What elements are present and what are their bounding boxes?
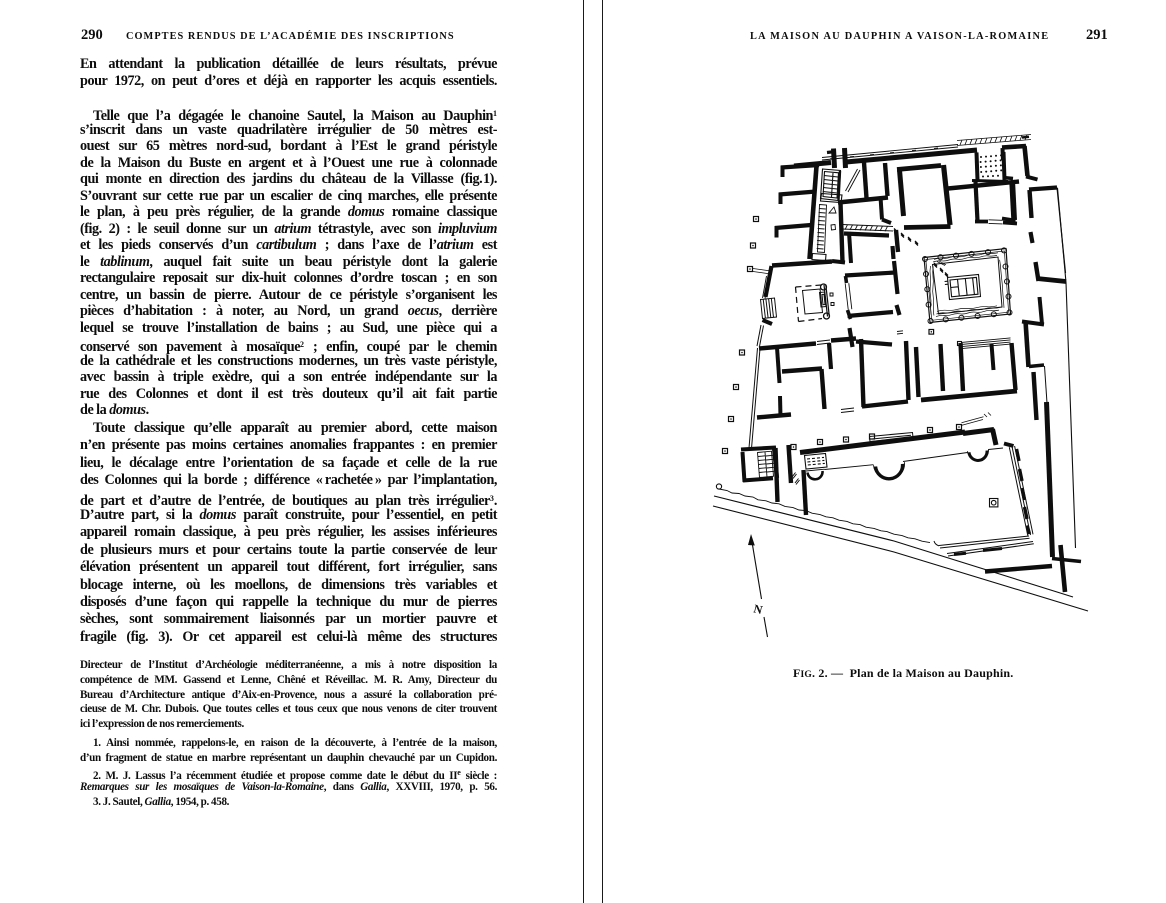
svg-text:N: N	[752, 601, 764, 617]
